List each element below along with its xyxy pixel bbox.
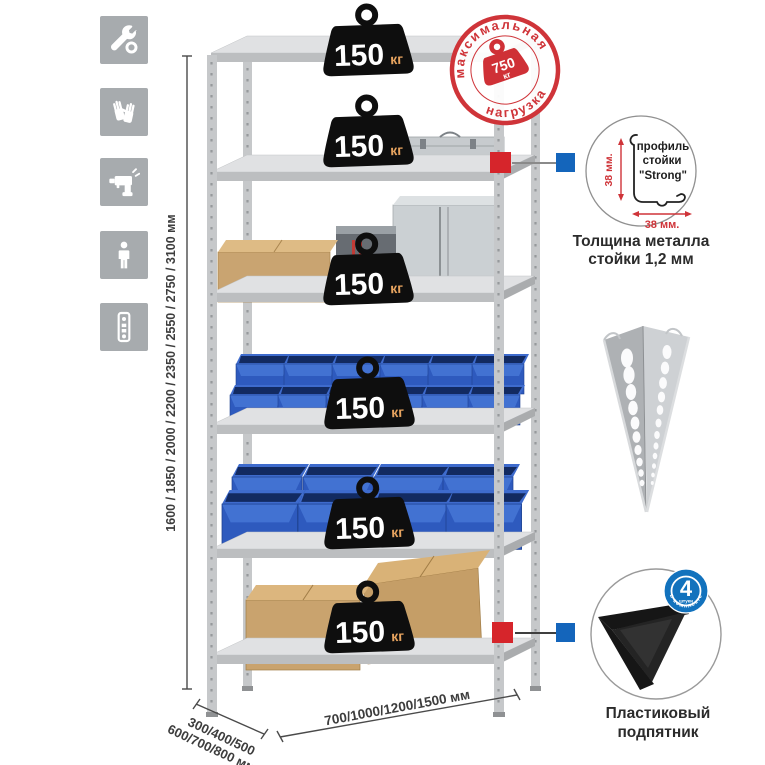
shelf-load-badge-2: 150кг: [321, 96, 414, 168]
shelf-load-value: 150: [333, 38, 384, 73]
profile-callout: 38 мм. 38 мм. профиль стойки "Strong" То…: [573, 116, 710, 268]
blue-marker-square: [556, 623, 575, 642]
badge-quantity-value: 4: [680, 576, 693, 601]
shelving-diagram: 150кг 150кг 150кг 150кг 150кг 150кг макс…: [0, 0, 765, 765]
angle-post-image: [604, 326, 689, 512]
profile-caption-1: Толщина металла: [573, 233, 710, 250]
shelf-load-value: 150: [333, 267, 384, 302]
shelf-load-value: 150: [334, 391, 385, 426]
product-infographic: 150кг 150кг 150кг 150кг 150кг 150кг макс…: [0, 0, 765, 765]
shelf-load-value: 150: [334, 615, 385, 650]
quantity-badge: 4 штуки в комплекте: [664, 569, 708, 613]
foot-caption-1: Пластиковый: [606, 705, 711, 722]
shelf-load-unit: кг: [390, 280, 404, 296]
shelf-load-value: 150: [333, 129, 384, 164]
red-marker-square: [492, 622, 513, 643]
height-dimension-label: 1600 / 1850 / 2000 / 2200 / 2350 / 2550 …: [164, 214, 178, 531]
shelf-load-badge-1: 150кг: [321, 5, 414, 77]
foot-caption-2: подпятник: [617, 724, 698, 741]
profile-caption-2: стойки 1,2 мм: [588, 251, 693, 268]
shelf-load-unit: кг: [391, 628, 405, 644]
blue-marker-square: [556, 153, 575, 172]
shelf-load-value: 150: [334, 511, 385, 546]
profile-dim-horizontal-label: 38 мм.: [645, 219, 680, 231]
height-dimension: 1600 / 1850 / 2000 / 2200 / 2350 / 2550 …: [164, 56, 192, 689]
shelf-load-unit: кг: [391, 404, 405, 420]
profile-label-1: профиль: [637, 141, 690, 153]
shelf-load-unit: кг: [390, 142, 404, 158]
width-dimension: 700/1000/1200/1500 мм: [277, 687, 520, 742]
foot-callout: 4 штуки в комплекте Пластиковый подпятни…: [591, 569, 721, 741]
profile-dim-vertical-label: 38 мм.: [603, 153, 615, 186]
red-marker-square: [490, 152, 511, 173]
profile-label-2: стойки: [643, 155, 682, 167]
shelf-load-unit: кг: [391, 524, 405, 540]
max-load-stamp: максимальная нагрузка 750 кг: [438, 2, 573, 137]
shelf-load-unit: кг: [390, 51, 404, 67]
profile-label-3: "Strong": [639, 170, 687, 182]
